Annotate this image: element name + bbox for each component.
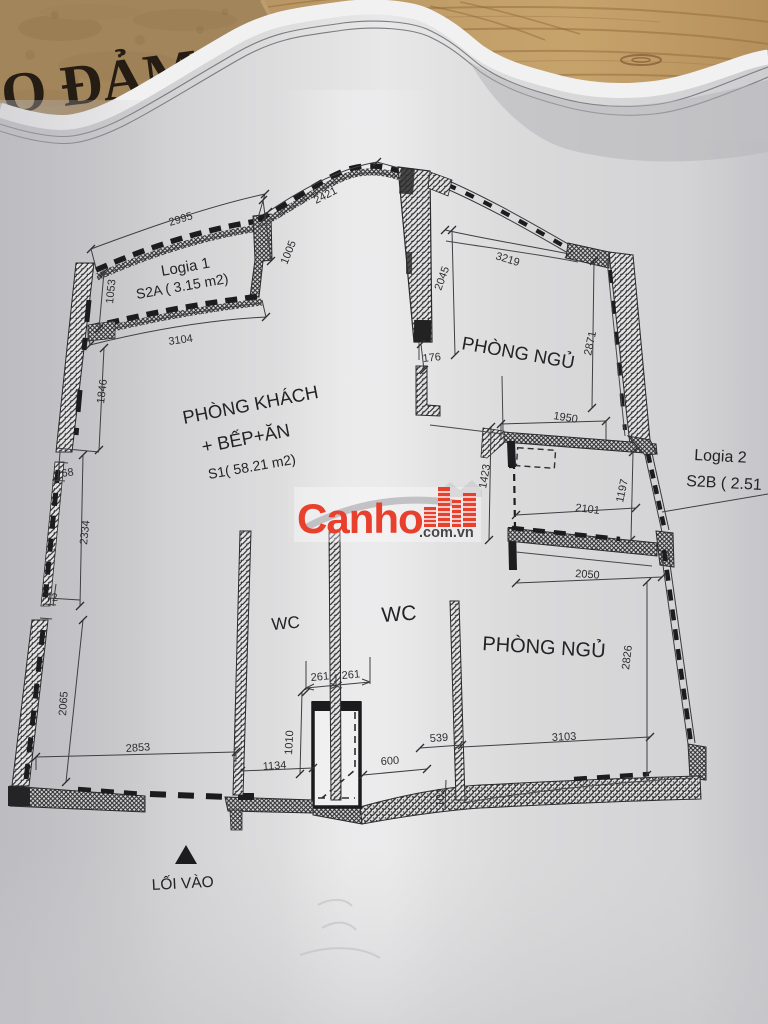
svg-text:3103: 3103 <box>552 731 577 744</box>
svg-text:2334: 2334 <box>78 520 92 546</box>
svg-text:72: 72 <box>45 592 59 605</box>
svg-text:1134: 1134 <box>262 759 286 773</box>
svg-text:176: 176 <box>422 351 442 365</box>
svg-text:Logia 2: Logia 2 <box>694 447 747 467</box>
svg-text:.com.vn: .com.vn <box>419 525 474 541</box>
svg-text:1010: 1010 <box>283 730 296 755</box>
svg-text:2050: 2050 <box>575 568 600 582</box>
svg-text:LỐI VÀO: LỐI VÀO <box>151 873 214 894</box>
svg-text:539: 539 <box>429 732 448 745</box>
svg-text:261: 261 <box>341 668 360 682</box>
svg-text:WC: WC <box>271 613 301 634</box>
svg-text:261: 261 <box>310 670 329 684</box>
svg-text:Canho: Canho <box>297 495 423 542</box>
svg-text:1053: 1053 <box>104 279 118 305</box>
svg-text:2065: 2065 <box>57 691 71 716</box>
svg-text:102: 102 <box>434 788 448 807</box>
svg-text:WC: WC <box>381 602 418 627</box>
svg-text:600: 600 <box>380 755 399 768</box>
svg-text:68: 68 <box>61 466 75 480</box>
svg-text:2853: 2853 <box>125 741 150 755</box>
